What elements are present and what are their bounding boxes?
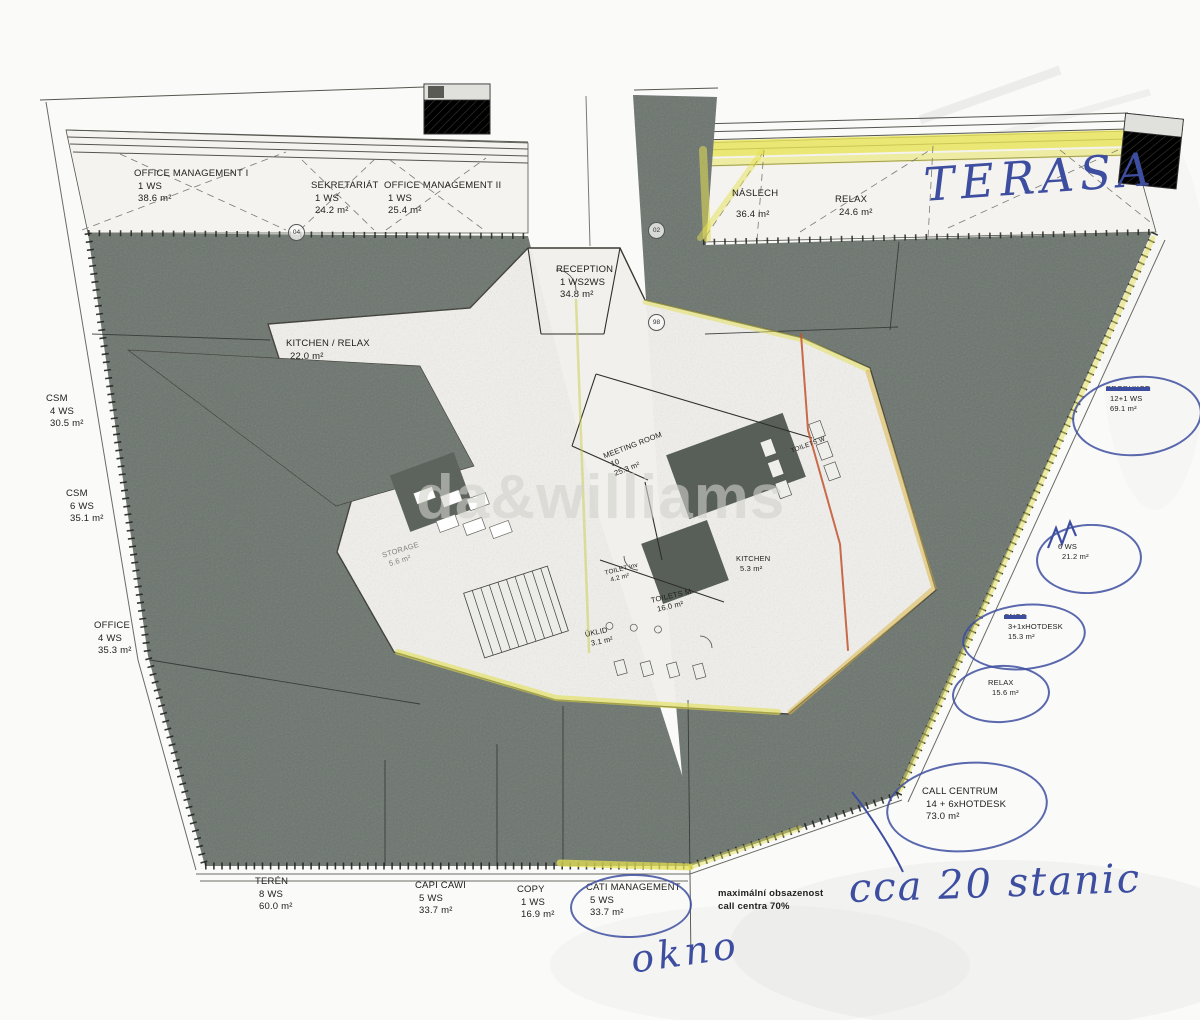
room-area: 30.5 m² [46, 418, 84, 431]
room-ws: 1 WS [384, 193, 501, 206]
room-area: 69.1 m² [1106, 404, 1150, 414]
room-area: 38.6 m² [134, 193, 248, 206]
room-ws: 1 WS2WS [556, 277, 613, 290]
note-line: call centra 70% [718, 901, 823, 914]
room-label-office-management-2: OFFICE MANAGEMENT II 1 WS 25.4 m² [384, 180, 501, 218]
room-label-reception: RECEPTION 1 WS2WS 34.8 m² [556, 264, 613, 302]
room-name: OFFICE MANAGEMENT I [134, 168, 248, 181]
room-area: 24.2 m² [311, 205, 378, 218]
room-ws: 12+1 WS [1106, 394, 1150, 404]
note-line: maximální obsazenost [718, 888, 823, 901]
room-name: SEKRETARIÁT [311, 180, 378, 193]
room-name: KITCHEN [736, 554, 770, 564]
room-label-capi-cawi: CAPI CAWI 5 WS 33.7 m² [415, 880, 466, 918]
floorplan-scan-page: da&williams OFFICE MANAGEMENT I 1 WS 38.… [0, 0, 1200, 1020]
room-ws: 1 WS [311, 193, 378, 206]
room-label-sekretariat: SEKRETARIÁT 1 WS 24.2 m² [311, 180, 378, 218]
room-label-copy: COPY 1 WS 16.9 m² [517, 884, 555, 922]
room-ws: 6 WS [1058, 542, 1089, 552]
door-marker-lower: 98 [648, 314, 665, 331]
door-marker-left: 04 [288, 224, 305, 241]
room-name: RELAX [835, 194, 873, 207]
room-name: CAPI CAWI [415, 880, 466, 893]
room-ws: 1 WS [517, 897, 555, 910]
room-label-relax-top: RELAX 24.6 m² [835, 194, 873, 219]
room-area: 15.6 m² [988, 688, 1019, 698]
room-label-relax-right: RELAX 15.6 m² [988, 678, 1019, 698]
door-marker-center: 02 [648, 222, 665, 239]
room-area: 22.0 m² [286, 351, 370, 364]
room-name: CSM [46, 393, 84, 406]
room-label-produkce: PRODUKCE 12+1 WS 69.1 m² [1106, 384, 1150, 414]
room-name: OFFICE [94, 620, 132, 633]
room-label-csm-4ws: CSM 4 WS 30.5 m² [46, 393, 84, 431]
room-ws: 3+1xHOTDESK [1004, 622, 1063, 632]
room-label-call-centrum: CALL CENTRUM 14 + 6xHOTDESK 73.0 m² [922, 786, 1006, 824]
room-area: 36.4 m² [732, 209, 778, 222]
room-area: 73.0 m² [922, 811, 1006, 824]
room-ws: 8 WS [255, 889, 293, 902]
room-name: CSM [66, 488, 104, 501]
room-ws: 6 WS [66, 501, 104, 514]
room-name: RECEPTION [556, 264, 613, 277]
room-area: 21.2 m² [1058, 552, 1089, 562]
room-label-kitchen-core: KITCHEN 5.3 m² [736, 554, 770, 574]
room-ws: 14 + 6xHOTDESK [922, 799, 1006, 812]
room-label-it: 6 WS 21.2 m² [1058, 542, 1089, 562]
room-area: 60.0 m² [255, 901, 293, 914]
room-area: 33.7 m² [415, 905, 466, 918]
room-ws: 4 WS [94, 633, 132, 646]
room-name: CALL CENTRUM [922, 786, 1006, 799]
room-name: PRODUKCE [1106, 384, 1150, 394]
room-label-kitchen-relax: KITCHEN / RELAX 22.0 m² [286, 338, 370, 363]
watermark: da&williams [416, 462, 785, 533]
room-area: 25.4 m² [384, 205, 501, 218]
room-name: NÁSLECH [732, 188, 778, 201]
room-area: 24.6 m² [835, 207, 873, 220]
room-area: 15.3 m² [1004, 632, 1063, 642]
room-name: TERÉN [255, 876, 293, 889]
room-ws: 1 WS [134, 181, 248, 194]
room-area: 34.8 m² [556, 289, 613, 302]
stair-block-top-center [424, 84, 490, 134]
room-area: 16.9 m² [517, 909, 555, 922]
room-label-cncc: CNCC 3+1xHOTDESK 15.3 m² [1004, 612, 1063, 642]
room-name: RELAX [988, 678, 1019, 688]
room-name: COPY [517, 884, 555, 897]
room-label-teren: TERÉN 8 WS 60.0 m² [255, 876, 293, 914]
room-ws: 4 WS [46, 406, 84, 419]
room-label-office-4ws: OFFICE 4 WS 35.3 m² [94, 620, 132, 658]
room-label-csm-6ws: CSM 6 WS 35.1 m² [66, 488, 104, 526]
room-label-naslech: NÁSLECH 36.4 m² [732, 188, 778, 221]
room-label-office-management-1: OFFICE MANAGEMENT I 1 WS 38.6 m² [134, 168, 248, 206]
room-name: OFFICE MANAGEMENT II [384, 180, 501, 193]
room-area: 5.3 m² [736, 564, 770, 574]
room-name: CNCC [1004, 612, 1063, 622]
room-name: KITCHEN / RELAX [286, 338, 370, 351]
room-ws: 5 WS [415, 893, 466, 906]
room-area: 35.3 m² [94, 645, 132, 658]
note-max-occupancy: maximální obsazenost call centra 70% [718, 888, 823, 913]
room-area: 35.1 m² [66, 513, 104, 526]
